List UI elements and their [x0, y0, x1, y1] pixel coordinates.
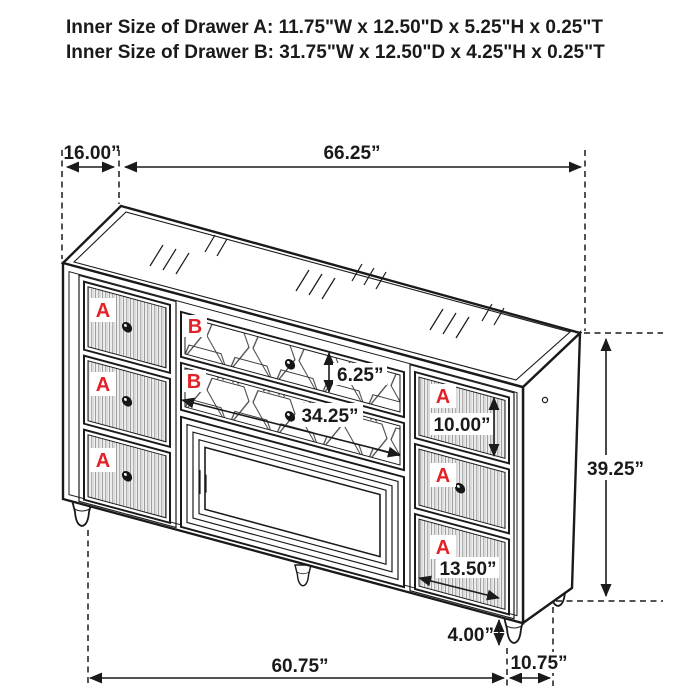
- dim-base-depth: 10.75”: [510, 652, 568, 678]
- dim-label-60-75: 60.75”: [271, 656, 328, 677]
- tag-a-right-1: A: [436, 386, 450, 408]
- dim-top-side: 16.00”: [63, 143, 120, 167]
- dim-label-34-25: 34.25”: [301, 406, 358, 427]
- tag-b-2: B: [187, 371, 201, 393]
- dim-label-6-25: 6.25”: [337, 365, 383, 386]
- dim-label-16: 16.00”: [63, 143, 120, 164]
- tag-a-right-3: A: [436, 537, 450, 559]
- dim-label-13-50: 13.50”: [439, 559, 496, 580]
- dim-leg-height: 4.00”: [448, 620, 499, 646]
- title-drawer-a-size: Inner Size of Drawer A: 11.75"W x 12.50"…: [66, 17, 603, 38]
- dim-label-10-75: 10.75”: [510, 653, 567, 674]
- dim-label-39-25: 39.25”: [587, 459, 644, 480]
- dim-top-width: 66.25”: [125, 143, 581, 167]
- dim-base-width: 60.75”: [90, 656, 504, 678]
- dim-label-4-00: 4.00”: [448, 625, 494, 646]
- tag-a-left-3: A: [96, 450, 110, 472]
- tag-b-1: B: [188, 316, 202, 338]
- tag-a-left-2: A: [96, 374, 110, 396]
- center-leg: [295, 565, 311, 586]
- title-drawer-b-size: Inner Size of Drawer B: 31.75"W x 12.50"…: [66, 42, 605, 63]
- tag-a-right-2: A: [436, 465, 450, 487]
- dim-label-10-00: 10.00”: [433, 415, 490, 436]
- dim-label-66: 66.25”: [323, 143, 380, 164]
- tag-a-left-1: A: [96, 300, 110, 322]
- diagram-svg: Inner Size of Drawer A: 11.75"W x 12.50"…: [0, 0, 700, 700]
- right-drawer-column: [410, 365, 514, 619]
- dim-overall-height: 39.25”: [584, 339, 644, 596]
- furniture-dimension-diagram: Inner Size of Drawer A: 11.75"W x 12.50"…: [0, 0, 700, 700]
